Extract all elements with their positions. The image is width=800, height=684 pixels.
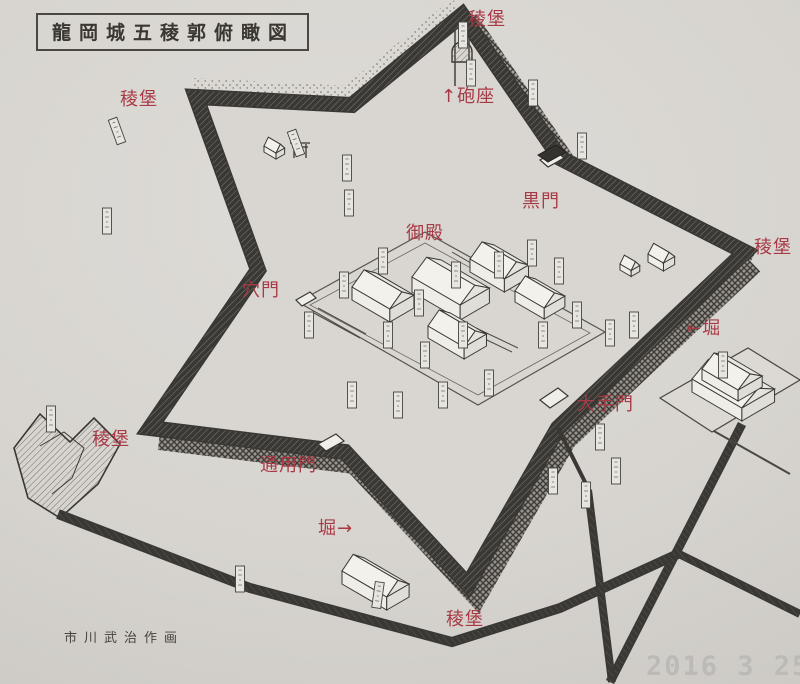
annotation-tsuyomon-gate: 通用門: [260, 451, 317, 477]
label-tag: [421, 342, 430, 368]
label-tag: [340, 272, 349, 298]
date-stamp: 2016 3 25: [646, 651, 800, 682]
label-tag: [555, 258, 564, 284]
label-tag: [495, 252, 504, 278]
label-tag: [348, 382, 357, 408]
annotation-bastion-right: 稜堡: [754, 233, 792, 259]
map-title: 龍岡城五稜郭俯瞰図: [52, 22, 295, 44]
annotation-kuromon-gate: 黒門: [522, 187, 560, 213]
label-tag: [384, 322, 393, 348]
label-tag: [630, 312, 639, 338]
label-tag: [612, 458, 621, 484]
label-tag: [103, 208, 112, 234]
title-box: 龍岡城五稜郭俯瞰図: [36, 13, 309, 51]
label-tag: [573, 302, 582, 328]
annotation-goten-palace: 御殿: [406, 219, 444, 245]
label-tag: [578, 133, 587, 159]
label-tag: [439, 382, 448, 408]
label-tag: [549, 468, 558, 494]
label-tag: [236, 566, 245, 592]
annotation-bastion-lower-left: 稜堡: [92, 425, 130, 451]
label-tag: [452, 262, 461, 288]
label-tag: [394, 392, 403, 418]
label-tag: [415, 290, 424, 316]
annotation-bastion-top: 稜堡: [468, 5, 506, 31]
scanned-castle-map: 龍岡城五稜郭俯瞰図 稜堡 ↑砲座 稜堡 黒門 御殿 稜堡 ←堀 穴門 大手門 稜…: [0, 0, 800, 684]
label-tag: [343, 155, 352, 181]
label-tag: [459, 22, 468, 48]
label-tag: [379, 248, 388, 274]
annotation-moat-right: ←堀: [686, 314, 721, 340]
annotation-bastion-bottom: 稜堡: [446, 605, 484, 631]
label-tag: [485, 370, 494, 396]
annotation-anamon-gate: 穴門: [242, 276, 280, 302]
annotation-bastion-upper-left: 稜堡: [120, 85, 158, 111]
label-tag: [582, 482, 591, 508]
label-tag: [345, 190, 354, 216]
annotation-moat-bottom: 堀→: [318, 514, 353, 540]
label-tag: [528, 240, 537, 266]
label-tag: [459, 322, 468, 348]
annotation-otemon-gate: 大手門: [577, 390, 634, 416]
label-tag: [719, 352, 728, 378]
label-tag: [529, 80, 538, 106]
label-tag: [108, 117, 125, 145]
label-tag: [539, 322, 548, 348]
label-tag: [596, 424, 605, 450]
artist-signature: 市川武治作画: [64, 627, 184, 646]
label-tag: [606, 320, 615, 346]
label-tag: [47, 406, 56, 432]
label-tag: [305, 312, 314, 338]
annotation-gun-platform: ↑砲座: [441, 82, 495, 108]
